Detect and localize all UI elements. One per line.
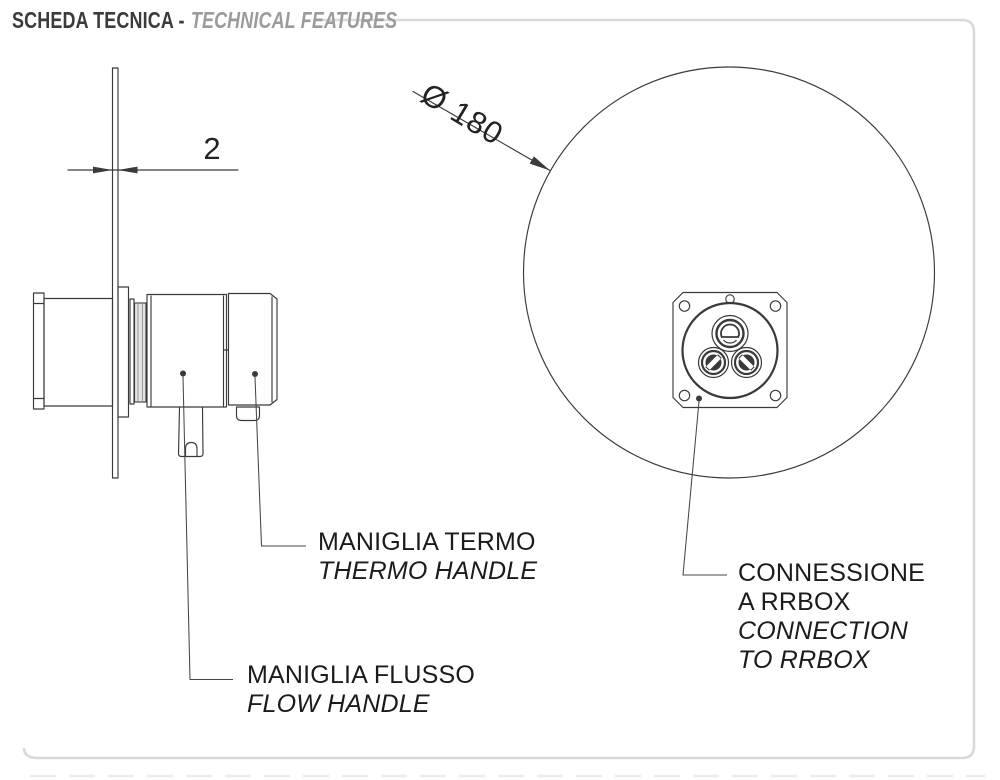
thermo-handle-label-it: MANIGLIA TERMO bbox=[318, 528, 537, 557]
wall-plate bbox=[113, 68, 119, 478]
header-title-english: TECHNICAL FEATURES bbox=[191, 7, 397, 34]
knurled-collar bbox=[135, 303, 147, 402]
cartridge-sleeve bbox=[130, 299, 134, 404]
rrbox-screw-hole-br bbox=[770, 390, 780, 400]
flow-handle-body bbox=[147, 295, 227, 408]
flow-lever-arch bbox=[186, 443, 198, 457]
plate-thickness-dimension: 2 bbox=[195, 131, 229, 167]
thermo-handle-body bbox=[229, 294, 278, 406]
port-inlet-right bbox=[732, 348, 762, 378]
port-left-ring bbox=[702, 351, 725, 374]
port-left-slot-glyph bbox=[705, 354, 721, 370]
rrbox-screw-hole-tr bbox=[770, 301, 780, 311]
port-thermo bbox=[712, 316, 748, 352]
port-thermo-d-shape bbox=[721, 325, 739, 337]
sheet-header: SCHEDA TECNICA - TECHNICAL FEATURES bbox=[12, 7, 397, 34]
plate-thickness-dimension-lines bbox=[68, 167, 238, 174]
flow-handle-label-en: FLOW HANDLE bbox=[247, 690, 475, 719]
flow-leader-line bbox=[183, 377, 233, 680]
side-view bbox=[34, 68, 307, 680]
thermo-handle-label-en: THERMO HANDLE bbox=[318, 557, 537, 586]
valve-body bbox=[44, 299, 113, 407]
port-inlet-left bbox=[699, 348, 729, 378]
rrbox-central-boss bbox=[683, 303, 778, 398]
rrbox-label-en-1: CONNECTION bbox=[738, 617, 925, 646]
rrbox-screw-hole-tl bbox=[679, 301, 689, 311]
rrbox-label-it-1: CONNESSIONE bbox=[738, 559, 925, 588]
flow-lever bbox=[179, 407, 204, 457]
rrbox-plate bbox=[673, 293, 787, 408]
thermo-handle-label: MANIGLIA TERMO THERMO HANDLE bbox=[318, 528, 537, 586]
valve-body-cap bbox=[34, 293, 45, 409]
rrbox-leader-line bbox=[683, 402, 727, 576]
rrbox-connection-label: CONNESSIONE A RRBOX CONNECTION TO RRBOX bbox=[738, 559, 925, 675]
port-thermo-arc bbox=[724, 340, 737, 343]
escutcheon-circle bbox=[524, 67, 935, 478]
rrbox-screw-hole-bl bbox=[679, 390, 689, 400]
flow-handle-label: MANIGLIA FLUSSO FLOW HANDLE bbox=[247, 661, 475, 719]
rrbox-label-en-2: TO RRBOX bbox=[738, 646, 925, 675]
rrbox-leader-dot bbox=[696, 396, 702, 402]
diameter-leader-arrow bbox=[530, 156, 552, 174]
dimension-arrow-left bbox=[93, 167, 113, 174]
thermo-leader-dot bbox=[252, 371, 258, 377]
port-right-slot-glyph bbox=[738, 354, 754, 370]
flow-handle-label-it: MANIGLIA FLUSSO bbox=[247, 661, 475, 690]
thermo-leader-line bbox=[255, 377, 306, 546]
dimension-arrow-right bbox=[118, 167, 138, 174]
port-right-ring bbox=[735, 351, 758, 374]
header-title-italian: SCHEDA TECNICA - bbox=[12, 7, 185, 34]
rrbox-label-it-2: A RRBOX bbox=[738, 588, 925, 617]
flow-leader-dot bbox=[180, 371, 186, 377]
escutcheon-plate-side bbox=[118, 287, 129, 417]
